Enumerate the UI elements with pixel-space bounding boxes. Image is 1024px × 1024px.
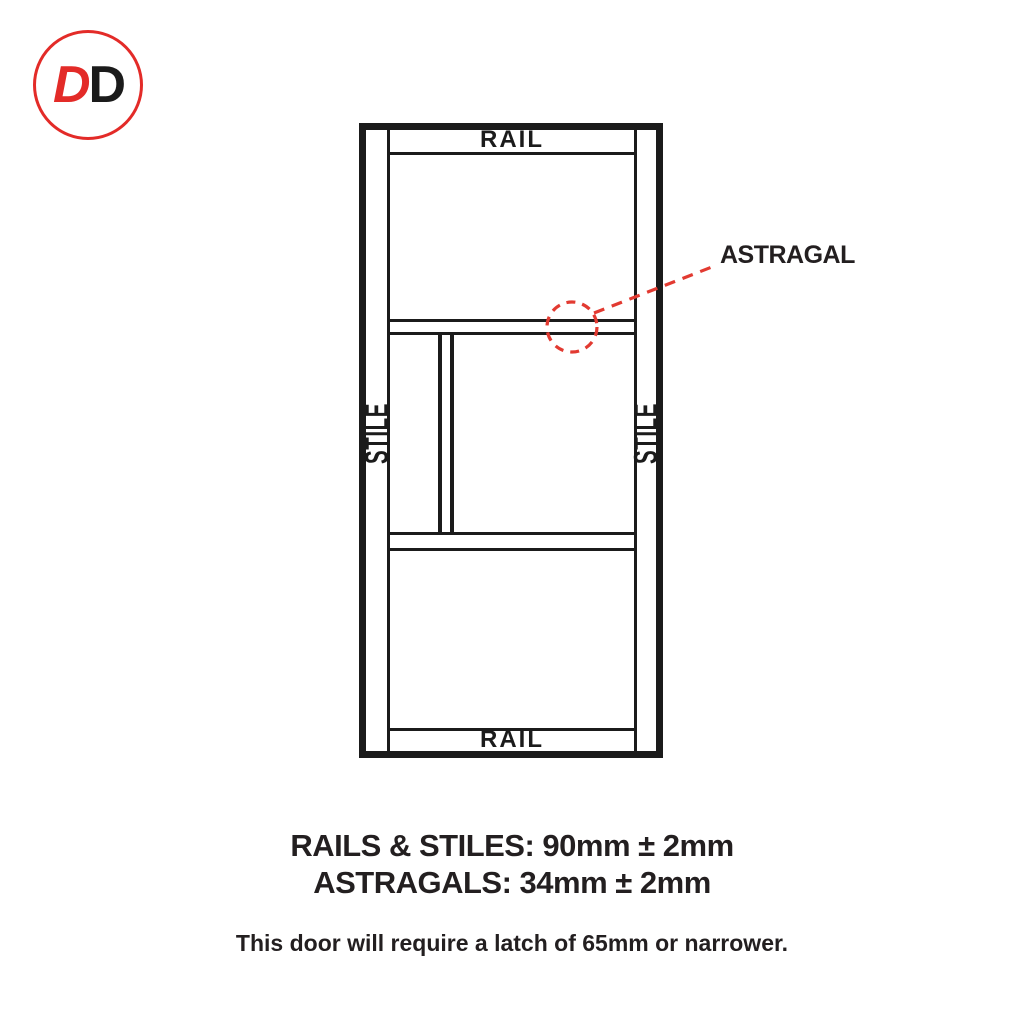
vertical-astragal-right-line xyxy=(450,335,454,535)
logo-letter-black: D xyxy=(89,59,124,111)
latch-note-text: This door will require a latch of 65mm o… xyxy=(0,932,1024,955)
dd-logo: D D xyxy=(33,30,143,140)
vertical-astragal-left-line xyxy=(438,335,442,535)
upper-astragal-top-line xyxy=(390,319,634,322)
top-rail-label: RAIL xyxy=(390,129,634,151)
logo-letter-red: D xyxy=(53,59,88,111)
lower-astragal-bottom-line xyxy=(390,548,634,551)
right-stile-label: STILE xyxy=(635,393,656,473)
astragals-spec-text: ASTRAGALS: 34mm ± 2mm xyxy=(0,867,1024,898)
upper-astragal-bottom-line xyxy=(390,332,634,335)
rails-stiles-spec-text: RAILS & STILES: 90mm ± 2mm xyxy=(0,830,1024,861)
left-stile-label: STILE xyxy=(366,393,387,473)
door-diagram: RAIL RAIL STILE STILE xyxy=(359,123,663,758)
bottom-rail-label: RAIL xyxy=(390,729,634,751)
astragal-label: ASTRAGAL xyxy=(720,243,855,268)
lower-astragal-top-line xyxy=(390,532,634,535)
